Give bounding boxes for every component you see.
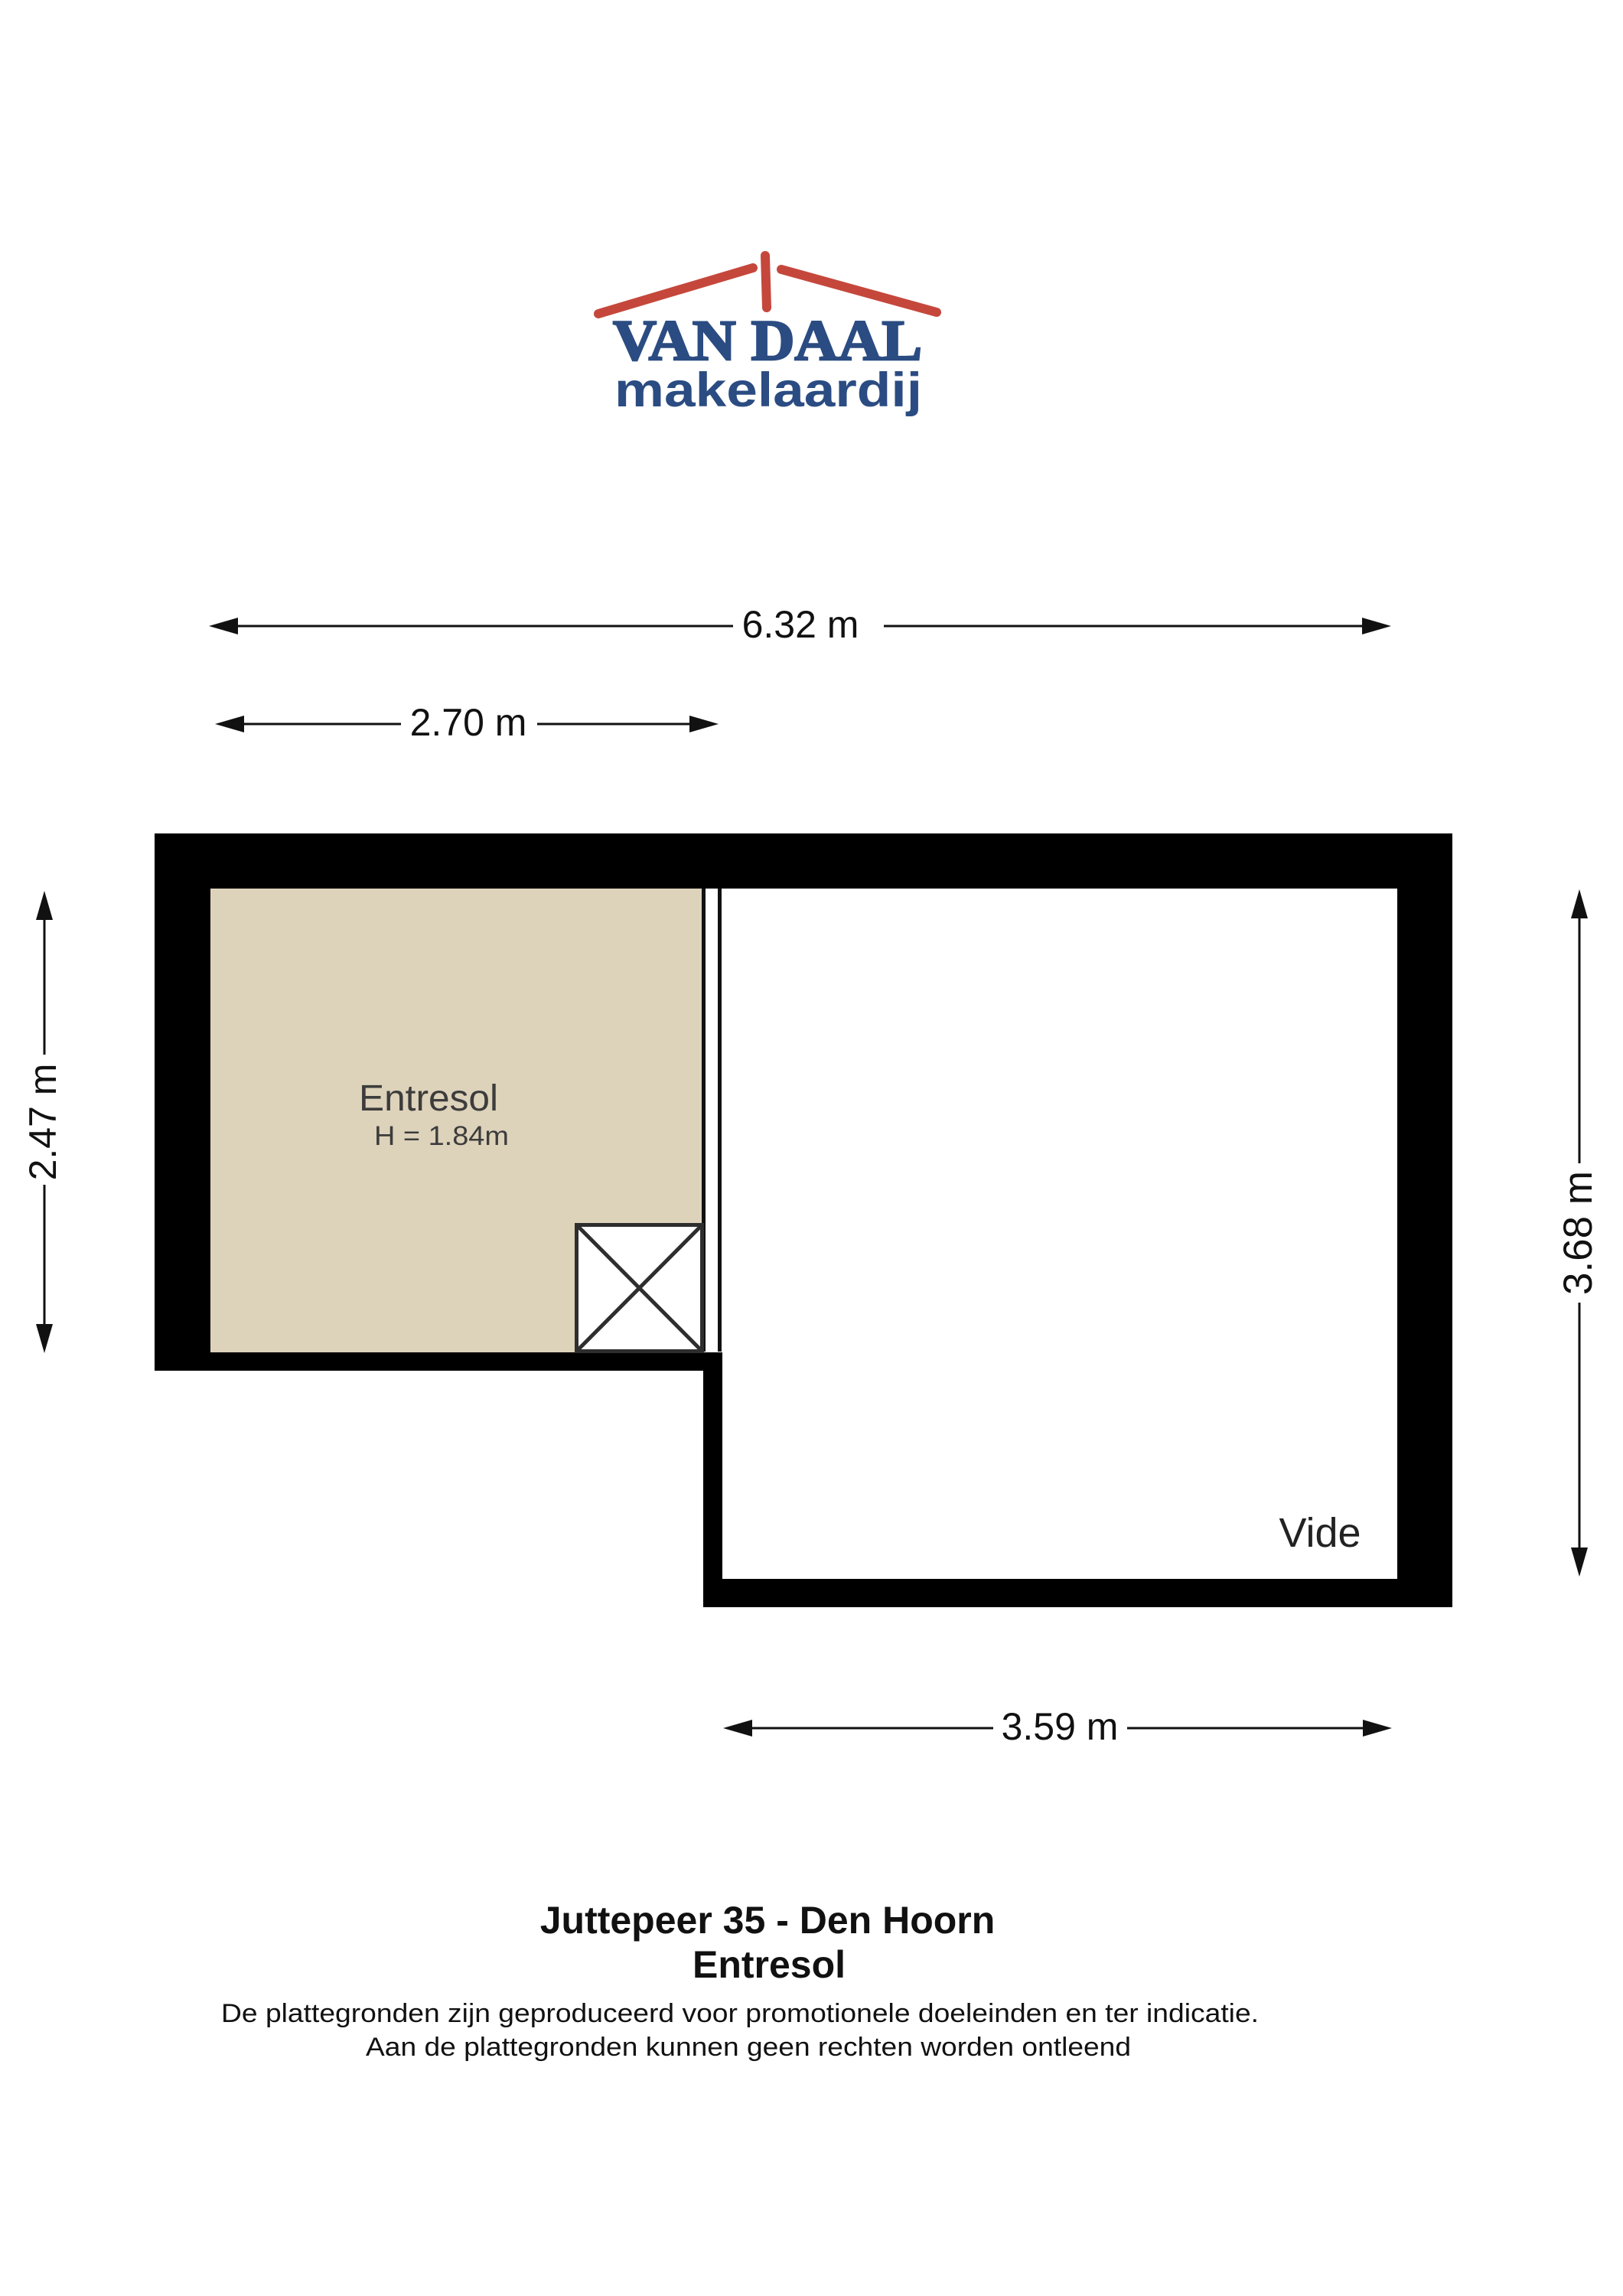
svg-text:Entresol: Entresol <box>693 1943 846 1986</box>
svg-text:Juttepeer 35 - Den Hoorn: Juttepeer 35 - Den Hoorn <box>540 1899 996 1942</box>
svg-text:makelaardij: makelaardij <box>614 364 922 417</box>
svg-text:3.68 m: 3.68 m <box>1556 1171 1601 1295</box>
svg-text:Entresol: Entresol <box>359 1078 498 1119</box>
svg-text:Aan de plattegronden kunnen ge: Aan de plattegronden kunnen geen rechten… <box>366 2033 1131 2062</box>
svg-text:Vide: Vide <box>1279 1510 1361 1556</box>
svg-text:H = 1.84m: H = 1.84m <box>374 1121 509 1151</box>
svg-text:De plattegronden zijn geproduc: De plattegronden zijn geproduceerd voor … <box>221 1999 1259 2028</box>
svg-text:6.32 m: 6.32 m <box>742 603 859 646</box>
svg-text:3.59 m: 3.59 m <box>1002 1705 1119 1748</box>
svg-text:2.70 m: 2.70 m <box>410 701 527 744</box>
svg-text:2.47 m: 2.47 m <box>21 1064 64 1181</box>
